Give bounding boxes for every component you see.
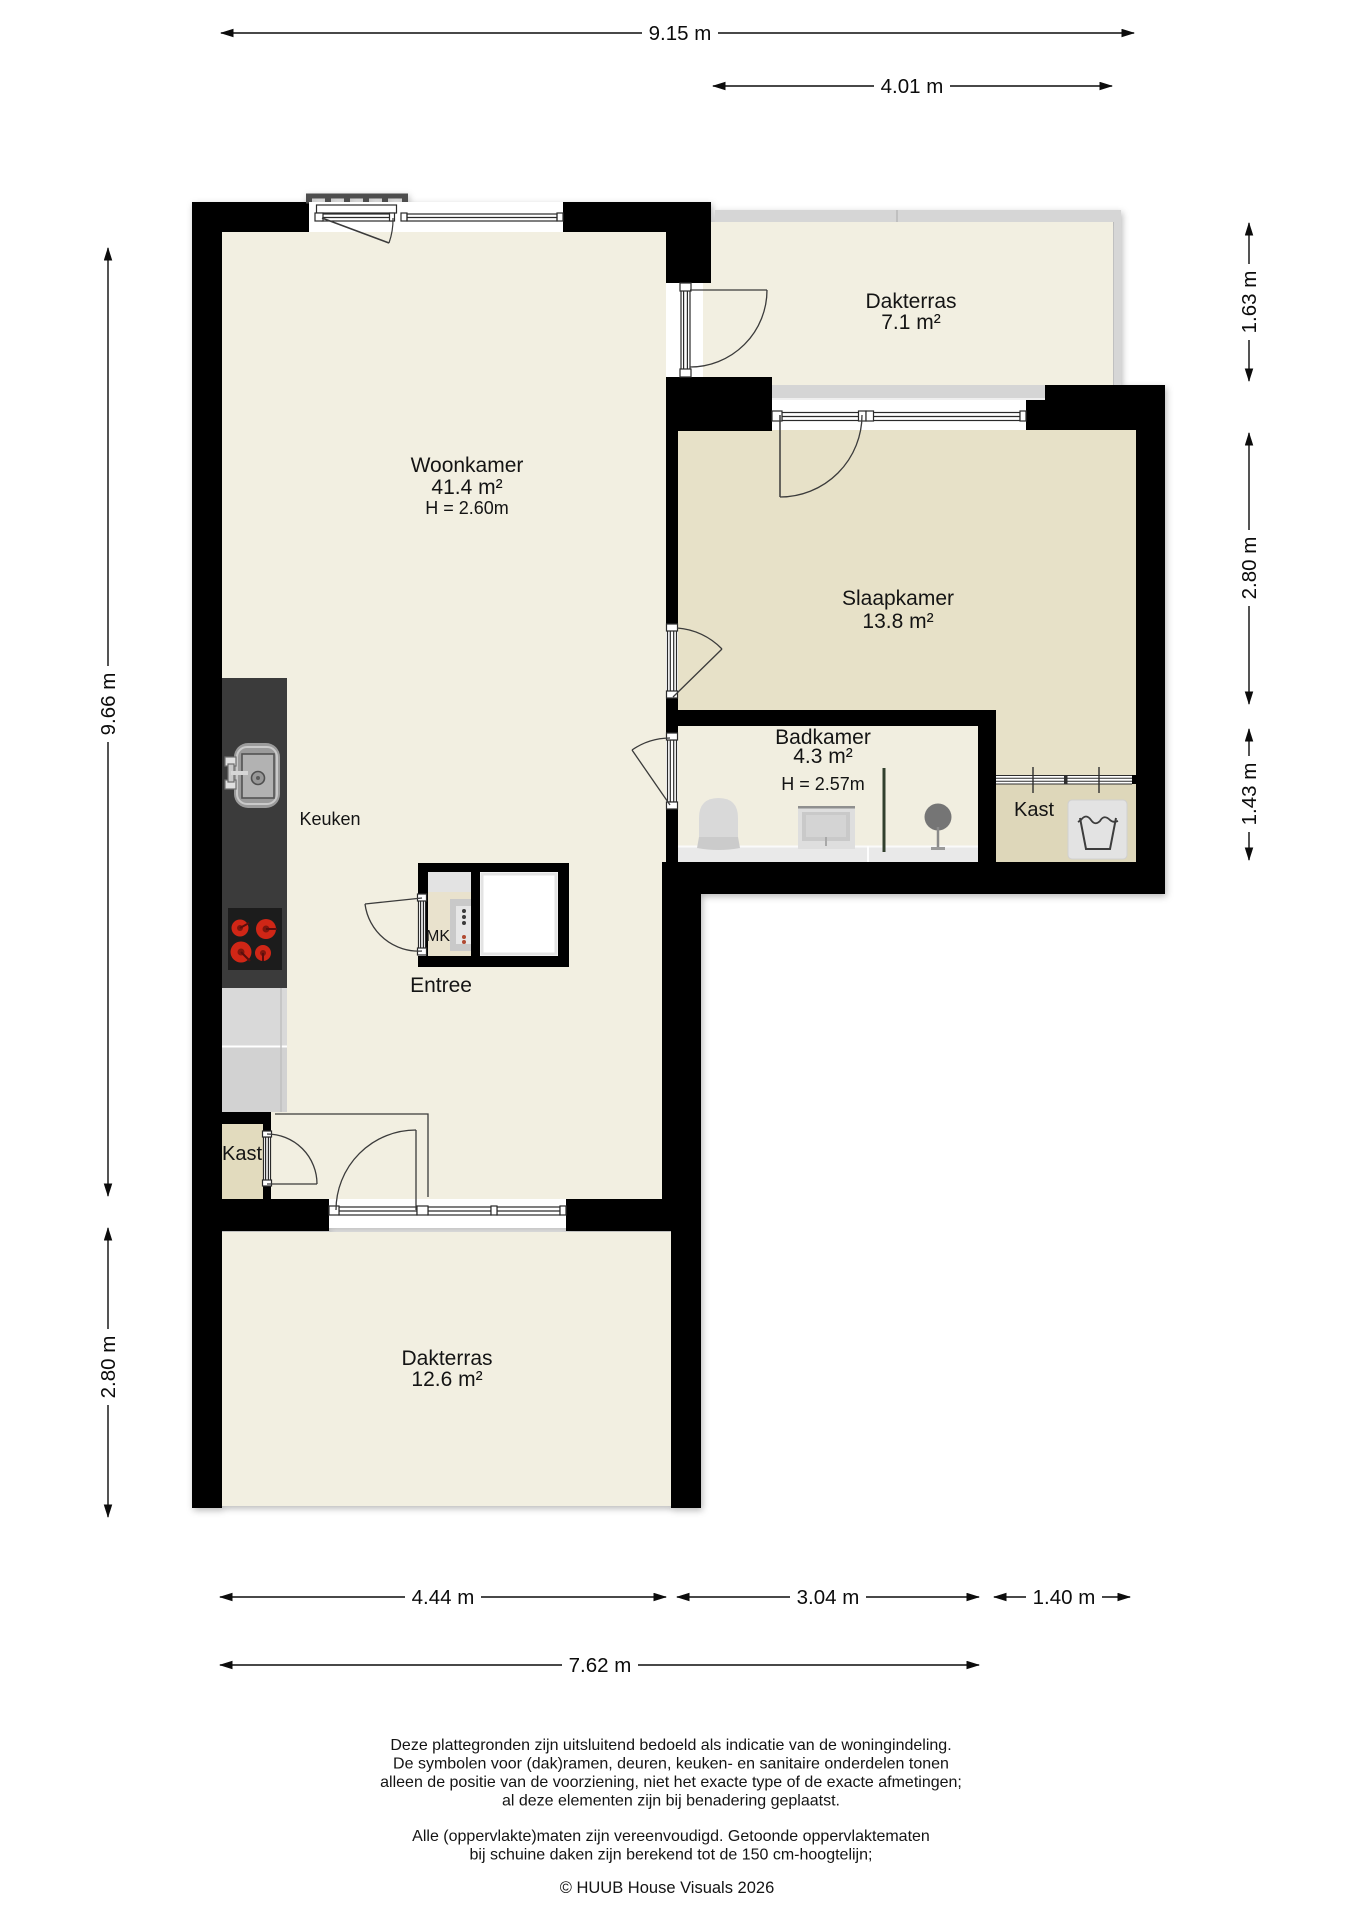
svg-text:Keuken: Keuken	[299, 809, 360, 829]
svg-text:H = 2.57m: H = 2.57m	[781, 774, 865, 794]
svg-text:9.66 m: 9.66 m	[97, 673, 120, 736]
svg-text:1.40 m: 1.40 m	[1033, 1586, 1096, 1609]
svg-text:7.62 m: 7.62 m	[569, 1654, 632, 1677]
svg-text:1.43 m: 1.43 m	[1238, 763, 1261, 826]
svg-text:Dakterras: Dakterras	[401, 1347, 492, 1370]
svg-text:2.80 m: 2.80 m	[97, 1336, 120, 1399]
svg-text:Kast: Kast	[222, 1143, 262, 1165]
svg-text:Alle (oppervlakte)maten zijn v: Alle (oppervlakte)maten zijn vereenvoudi…	[412, 1828, 930, 1845]
svg-text:4.3 m²: 4.3 m²	[793, 745, 853, 768]
svg-text:4.01 m: 4.01 m	[881, 75, 944, 98]
svg-text:al deze elementen zijn bij ben: al deze elementen zijn bij benadering ge…	[502, 1793, 840, 1810]
svg-text:1.63 m: 1.63 m	[1238, 271, 1261, 334]
svg-text:41.4 m²: 41.4 m²	[431, 476, 502, 499]
svg-text:3.04 m: 3.04 m	[797, 1586, 860, 1609]
svg-text:© HUUB House Visuals 2026: © HUUB House Visuals 2026	[560, 1879, 775, 1897]
svg-text:Deze plattegronden zijn uitslu: Deze plattegronden zijn uitsluitend bedo…	[390, 1737, 951, 1754]
svg-text:bij schuine daken zijn bereken: bij schuine daken zijn berekend tot de 1…	[470, 1847, 873, 1864]
svg-text:7.1 m²: 7.1 m²	[881, 311, 941, 334]
svg-text:MK: MK	[426, 928, 450, 945]
svg-text:2.80 m: 2.80 m	[1238, 537, 1261, 600]
svg-text:Slaapkamer: Slaapkamer	[842, 587, 954, 610]
svg-text:De symbolen voor (dak)ramen, d: De symbolen voor (dak)ramen, deuren, keu…	[393, 1756, 949, 1773]
svg-text:13.8 m²: 13.8 m²	[862, 610, 933, 633]
svg-text:Kast: Kast	[1014, 799, 1054, 821]
svg-text:Woonkamer: Woonkamer	[411, 454, 524, 477]
svg-text:4.44 m: 4.44 m	[412, 1586, 475, 1609]
svg-text:H = 2.60m: H = 2.60m	[425, 498, 509, 518]
svg-text:12.6 m²: 12.6 m²	[411, 1368, 482, 1391]
svg-text:Dakterras: Dakterras	[865, 290, 956, 313]
svg-text:Entree: Entree	[410, 974, 472, 997]
svg-text:9.15 m: 9.15 m	[649, 22, 712, 45]
svg-text:alleen de positie van de voorz: alleen de positie van de voorziening, ni…	[380, 1774, 962, 1791]
